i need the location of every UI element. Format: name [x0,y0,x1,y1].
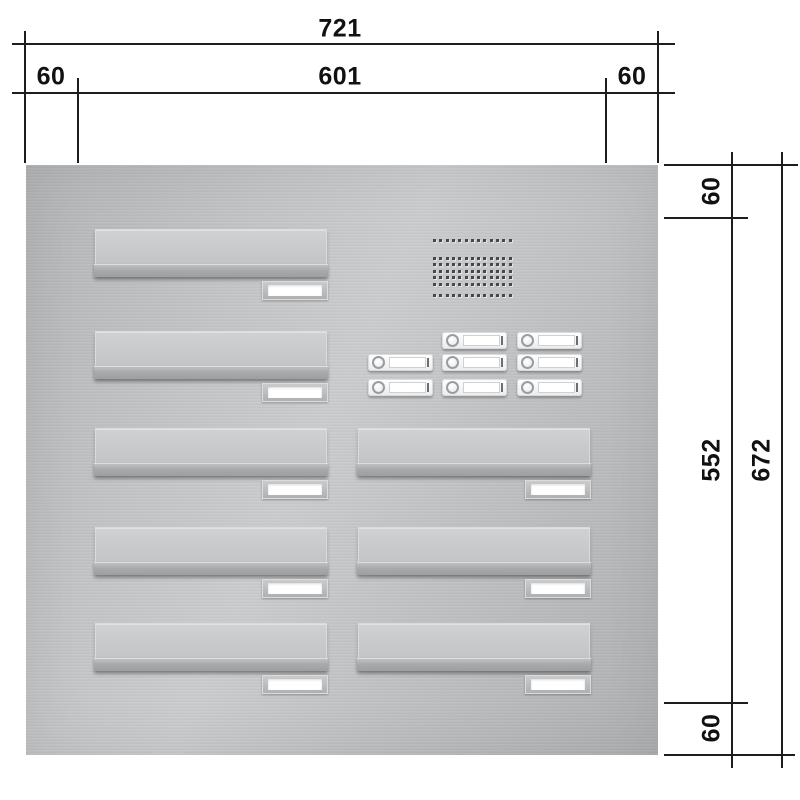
speaker-dot [471,257,474,260]
speaker-dot [458,270,461,273]
speaker-dot [446,276,449,279]
bell-button [517,379,582,396]
bell-name-field [389,357,426,368]
speaker-dot [458,294,461,297]
mailbox-flap-lip [357,562,591,575]
name-plate [525,579,591,598]
speaker-dot [509,276,512,279]
bell-push-icon [372,356,385,369]
bell-name-field [463,382,500,393]
mailbox-panel [26,165,658,755]
dim-label-total-width: 721 [318,17,361,42]
speaker-dot [496,283,499,286]
bell-slot-icon [501,358,503,367]
speaker-dot [502,283,505,286]
bell-name-field [538,357,575,368]
speaker-dot [471,276,474,279]
speaker-dot [471,270,474,273]
extension-line-left-edge [24,31,26,163]
bell-slot-icon [576,336,578,345]
dim-label-right-total: 672 [750,438,775,481]
speaker-dot [452,294,455,297]
extension-line-right-edge [657,31,659,163]
dim-line-inner-height [731,152,733,768]
mailbox-flap [95,229,327,277]
speaker-dot [433,294,436,297]
bell-name-field [463,335,500,346]
bell-button [442,354,507,371]
speaker-dot [502,270,505,273]
speaker-dot [502,294,505,297]
speaker-dot [502,239,505,242]
speaker-dot [490,263,493,266]
dim-label-right-top-margin: 60 [700,177,725,206]
speaker-dot [509,294,512,297]
bell-name-field [538,382,575,393]
speaker-dot [433,263,436,266]
mailbox-flap [95,331,327,379]
mailbox-flap [358,527,590,575]
name-plate-window [531,583,585,594]
mailbox-flap-lip [94,264,328,277]
bell-button [442,379,507,396]
extension-line-right-margin [605,78,607,163]
bell-push-icon [446,334,459,347]
speaker-dot [452,276,455,279]
speaker-dot [502,276,505,279]
speaker-dot [509,239,512,242]
speaker-dot [496,263,499,266]
speaker-dot [496,276,499,279]
speaker-dot [465,263,468,266]
mailbox-flap [358,428,590,476]
speaker-dot [477,263,480,266]
speaker-dot [446,263,449,266]
speaker-dot [477,283,480,286]
speaker-dot [439,294,442,297]
speaker-dot [471,263,474,266]
bell-slot-icon [501,336,503,345]
speaker-dot [465,239,468,242]
speaker-dot [465,270,468,273]
mailbox-flap [95,527,327,575]
name-plate [525,480,591,499]
speaker-dot [496,257,499,260]
speaker-dot [452,283,455,286]
bell-button [517,332,582,349]
extension-line-bottom-margin [664,702,748,704]
speaker-dot [433,276,436,279]
name-plate [262,480,328,499]
speaker-dot [477,239,480,242]
speaker-dot [490,283,493,286]
dim-label-right-bottom-margin: 60 [700,714,725,743]
speaker-dot [465,257,468,260]
bell-push-icon [372,381,385,394]
speaker-dot [458,263,461,266]
speaker-dot [465,294,468,297]
speaker-dot [446,239,449,242]
technical-drawing: 721 60 601 60 60 552 672 60 [0,0,800,800]
speaker-dot [477,276,480,279]
name-plate-window [531,484,585,495]
speaker-dot [471,283,474,286]
mailbox-flap [95,623,327,671]
bell-name-field [538,335,575,346]
speaker-dot [439,283,442,286]
dim-line-inner-width [12,92,675,94]
dim-label-top-right-margin: 60 [618,65,647,90]
speaker-dot [483,294,486,297]
mailbox-flap-lip [357,463,591,476]
speaker-dot [465,283,468,286]
dim-line-total-width [12,43,675,45]
name-plate-window [268,484,322,495]
speaker-dot [477,270,480,273]
bell-button [517,354,582,371]
bell-slot-icon [501,383,503,392]
speaker-dot [433,257,436,260]
mailbox-flap-lip [94,658,328,671]
bell-slot-icon [576,383,578,392]
speaker-dot [446,283,449,286]
dim-label-top-center: 601 [318,65,361,90]
speaker-dot [509,257,512,260]
name-plate [262,675,328,694]
bell-slot-icon [576,358,578,367]
name-plate [262,383,328,402]
speaker-dot [490,294,493,297]
speaker-dot [490,239,493,242]
bell-slot-icon [427,383,429,392]
name-plate-window [268,679,322,690]
speaker-dot [490,270,493,273]
speaker-dot [458,257,461,260]
speaker-dot [471,239,474,242]
speaker-dot [477,294,480,297]
extension-line-panel-bottom [664,754,795,756]
dim-label-right-center: 552 [700,438,725,481]
mailbox-flap-lip [94,562,328,575]
extension-line-top-margin [664,217,748,219]
speaker-dot [439,270,442,273]
speaker-dot [439,257,442,260]
name-plate [262,281,328,300]
dim-label-top-left-margin: 60 [37,65,66,90]
dim-line-total-height [781,152,783,768]
speaker-dot [446,257,449,260]
mailbox-flap [358,623,590,671]
speaker-dot [509,270,512,273]
speaker-dot [483,257,486,260]
bell-push-icon [446,381,459,394]
speaker-dot [458,283,461,286]
speaker-dot [452,270,455,273]
speaker-dot [483,239,486,242]
speaker-dot [496,294,499,297]
speaker-dot [446,270,449,273]
speaker-dot [439,263,442,266]
name-plate-window [268,285,322,296]
speaker-dot [483,276,486,279]
bell-button [442,332,507,349]
bell-slot-icon [427,358,429,367]
speaker-dot [458,276,461,279]
speaker-dot [483,270,486,273]
speaker-dot [433,270,436,273]
speaker-dot [433,239,436,242]
speaker-dot [452,239,455,242]
name-plate [262,579,328,598]
bell-button [368,354,433,371]
bell-push-icon [521,356,534,369]
bell-push-icon [446,356,459,369]
speaker-dot [496,270,499,273]
speaker-dot [471,294,474,297]
speaker-dot [477,257,480,260]
speaker-dot [433,283,436,286]
bell-name-field [389,382,426,393]
speaker-dot [439,239,442,242]
bell-push-icon [521,381,534,394]
speaker-dot [452,257,455,260]
speaker-dot [465,276,468,279]
speaker-dot [509,283,512,286]
speaker-dot [496,239,499,242]
extension-line-left-margin [77,78,79,163]
speaker-dot [439,276,442,279]
name-plate-window [268,583,322,594]
speaker-dot [446,294,449,297]
speaker-dot [502,257,505,260]
speaker-dot [490,276,493,279]
name-plate [525,675,591,694]
speaker-dot [452,263,455,266]
speaker-dot [483,283,486,286]
speaker-dot [458,239,461,242]
mailbox-flap [95,428,327,476]
bell-name-field [463,357,500,368]
mailbox-flap-lip [94,366,328,379]
speaker-dot [490,257,493,260]
name-plate-window [268,387,322,398]
bell-push-icon [521,334,534,347]
name-plate-window [531,679,585,690]
mailbox-flap-lip [94,463,328,476]
speaker-dot [502,263,505,266]
speaker-dot [483,263,486,266]
speaker-dot [509,263,512,266]
bell-button [368,379,433,396]
mailbox-flap-lip [357,658,591,671]
